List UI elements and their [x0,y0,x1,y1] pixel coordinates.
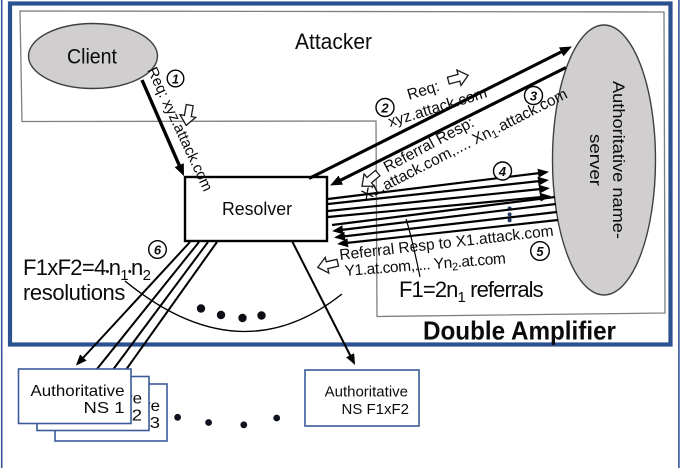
svg-text:5: 5 [536,244,544,259]
svg-text:Attacker: Attacker [295,29,372,54]
svg-text:Client: Client [67,46,117,69]
svg-text:Resolver: Resolver [222,199,292,219]
svg-text:2: 2 [380,101,389,116]
svg-text:F1=2n1 referrals: F1=2n1 referrals [399,277,544,306]
svg-text:Double Amplifier: Double Amplifier [423,316,616,346]
svg-text:NS F1xF2: NS F1xF2 [341,401,409,418]
svg-text:4: 4 [498,164,507,179]
svg-text:6: 6 [154,243,162,258]
svg-text:Authoritative: Authoritative [31,383,125,400]
svg-text:1: 1 [172,73,179,87]
svg-text:Authoritative name-: Authoritative name- [609,81,627,239]
svg-text:resolutions: resolutions [23,280,125,305]
svg-text:NS 1: NS 1 [84,400,125,417]
svg-text:3: 3 [530,89,538,104]
svg-text:Authoritative: Authoritative [325,384,408,401]
svg-text:server: server [586,134,604,187]
